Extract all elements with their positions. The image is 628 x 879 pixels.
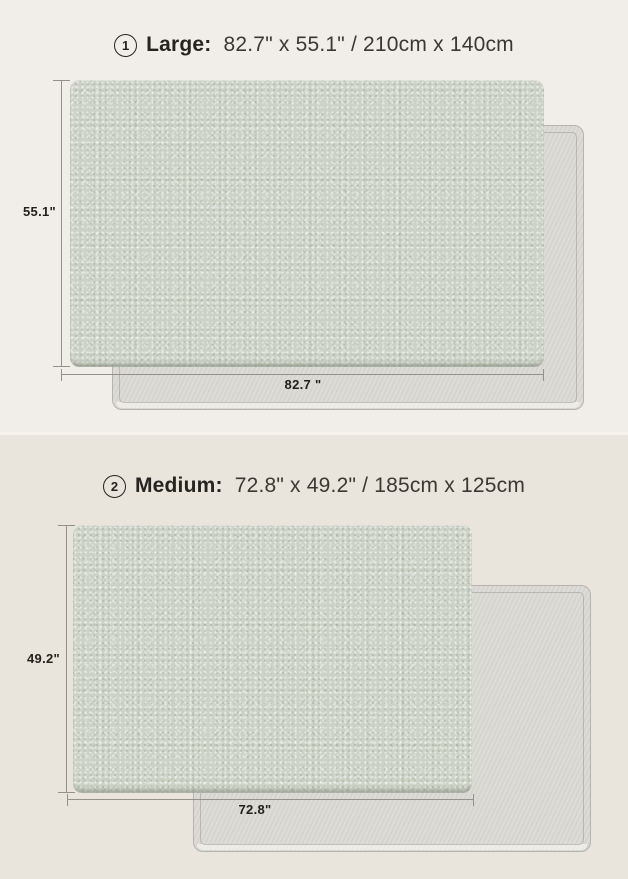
- size-name-large: Large:: [146, 33, 211, 57]
- size-section-medium: 2 Medium: 72.8" x 49.2" / 185cm x 125cm …: [0, 435, 628, 879]
- height-dimension-line: [66, 525, 67, 793]
- size-guide-image: 1 Large: 82.7" x 55.1" / 210cm x 140cm 5…: [0, 0, 628, 879]
- width-dimension-line: [67, 799, 474, 800]
- size-dimensions-large: 82.7" x 55.1" / 210cm x 140cm: [224, 33, 514, 57]
- height-label: 49.2": [8, 651, 60, 666]
- mat-front-green: [70, 80, 544, 367]
- height-dimension-line: [61, 80, 62, 367]
- size-section-large: 1 Large: 82.7" x 55.1" / 210cm x 140cm 5…: [0, 0, 628, 435]
- width-label: 82.7 ": [233, 377, 373, 392]
- size-name-medium: Medium:: [135, 474, 223, 498]
- mat-front-green: [73, 525, 472, 793]
- circled-number-icon: 1: [114, 34, 137, 57]
- size-dimensions-medium: 72.8" x 49.2" / 185cm x 125cm: [235, 474, 525, 498]
- width-label: 72.8": [185, 802, 325, 817]
- circled-number-icon: 2: [103, 475, 126, 498]
- width-dimension-line: [61, 374, 544, 375]
- section-title-medium: 2 Medium: 72.8" x 49.2" / 185cm x 125cm: [0, 474, 628, 498]
- section-title-large: 1 Large: 82.7" x 55.1" / 210cm x 140cm: [0, 33, 628, 57]
- height-label: 55.1": [4, 204, 56, 219]
